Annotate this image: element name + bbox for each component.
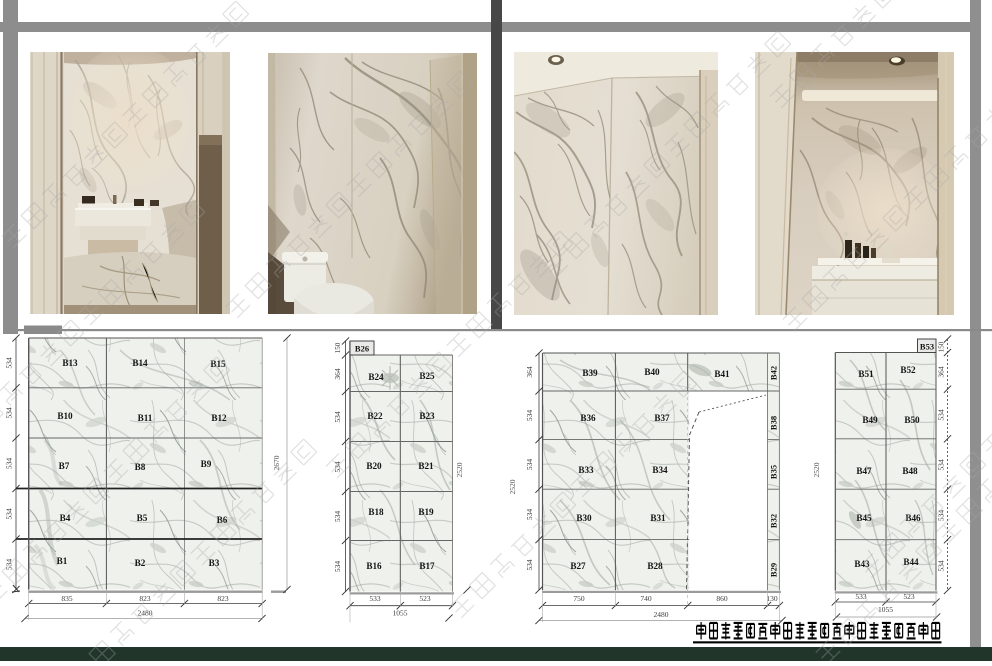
svg-text:130: 130 xyxy=(766,594,778,603)
svg-text:860: 860 xyxy=(716,594,728,603)
svg-text:B27: B27 xyxy=(570,561,586,571)
svg-text:B21: B21 xyxy=(418,461,434,471)
svg-text:B24: B24 xyxy=(368,372,384,382)
svg-text:B47: B47 xyxy=(856,466,872,476)
svg-text:B29: B29 xyxy=(769,563,779,577)
svg-text:B12: B12 xyxy=(211,413,227,423)
svg-text:B48: B48 xyxy=(902,466,918,476)
svg-text:B39: B39 xyxy=(582,368,598,378)
svg-text:534: 534 xyxy=(937,409,946,421)
svg-text:2480: 2480 xyxy=(654,610,669,619)
svg-text:B10: B10 xyxy=(57,411,73,421)
svg-text:534: 534 xyxy=(937,459,946,471)
svg-text:B32: B32 xyxy=(769,514,779,528)
svg-text:B40: B40 xyxy=(644,367,660,377)
svg-text:1055: 1055 xyxy=(393,609,408,618)
svg-text:2520: 2520 xyxy=(508,479,517,494)
svg-text:B41: B41 xyxy=(714,369,730,379)
svg-text:534: 534 xyxy=(333,561,342,573)
svg-text:534: 534 xyxy=(333,511,342,523)
svg-text:364: 364 xyxy=(525,366,534,378)
svg-text:750: 750 xyxy=(573,594,585,603)
svg-text:523: 523 xyxy=(903,592,915,601)
svg-text:B35: B35 xyxy=(769,465,779,479)
svg-text:B5: B5 xyxy=(137,513,148,523)
svg-text:B2: B2 xyxy=(135,558,146,568)
svg-text:B13: B13 xyxy=(62,358,78,368)
svg-text:B53: B53 xyxy=(920,342,934,352)
svg-text:B51: B51 xyxy=(858,369,874,379)
svg-text:1055: 1055 xyxy=(878,605,893,614)
svg-text:B28: B28 xyxy=(647,561,663,571)
svg-text:B34: B34 xyxy=(652,465,668,475)
svg-text:B9: B9 xyxy=(201,459,212,469)
svg-text:B17: B17 xyxy=(419,561,435,571)
svg-text:534: 534 xyxy=(5,508,14,520)
svg-text:B45: B45 xyxy=(856,513,872,523)
svg-text:533: 533 xyxy=(369,594,381,603)
svg-text:2520: 2520 xyxy=(455,462,464,477)
svg-text:534: 534 xyxy=(937,510,946,522)
svg-text:B36: B36 xyxy=(580,413,596,423)
svg-text:B49: B49 xyxy=(862,415,878,425)
svg-text:B11: B11 xyxy=(138,413,153,423)
svg-text:B19: B19 xyxy=(418,507,434,517)
svg-text:364: 364 xyxy=(937,366,946,378)
svg-text:835: 835 xyxy=(61,594,73,603)
svg-text:B20: B20 xyxy=(366,461,382,471)
svg-text:B26: B26 xyxy=(355,344,369,354)
svg-text:534: 534 xyxy=(333,411,342,423)
svg-text:534: 534 xyxy=(5,407,14,419)
svg-text:B52: B52 xyxy=(900,365,916,375)
svg-text:B3: B3 xyxy=(209,558,220,568)
svg-text:534: 534 xyxy=(937,560,946,572)
svg-text:B23: B23 xyxy=(419,411,435,421)
svg-text:523: 523 xyxy=(419,594,431,603)
svg-text:B1: B1 xyxy=(57,556,68,566)
svg-text:534: 534 xyxy=(5,458,14,470)
svg-text:B18: B18 xyxy=(368,507,384,517)
svg-text:B31: B31 xyxy=(650,513,666,523)
svg-text:B16: B16 xyxy=(366,561,382,571)
svg-text:B50: B50 xyxy=(904,415,920,425)
svg-text:2520: 2520 xyxy=(812,462,821,477)
svg-text:534: 534 xyxy=(525,509,534,521)
svg-text:B37: B37 xyxy=(654,413,670,423)
svg-text:B42: B42 xyxy=(769,366,779,380)
svg-text:150: 150 xyxy=(334,342,342,353)
svg-text:B38: B38 xyxy=(769,416,779,430)
svg-text:533: 533 xyxy=(855,592,867,601)
svg-text:364: 364 xyxy=(333,368,342,380)
svg-text:534: 534 xyxy=(525,410,534,422)
svg-text:B14: B14 xyxy=(132,358,148,368)
svg-text:823: 823 xyxy=(139,594,151,603)
svg-text:534: 534 xyxy=(525,459,534,471)
svg-text:150: 150 xyxy=(938,341,946,352)
svg-text:534: 534 xyxy=(5,357,14,369)
svg-text:B30: B30 xyxy=(576,513,592,523)
svg-text:B7: B7 xyxy=(59,461,70,471)
svg-text:823: 823 xyxy=(217,594,229,603)
svg-text:534: 534 xyxy=(525,559,534,571)
svg-text:740: 740 xyxy=(640,594,652,603)
svg-text:B4: B4 xyxy=(60,513,71,523)
